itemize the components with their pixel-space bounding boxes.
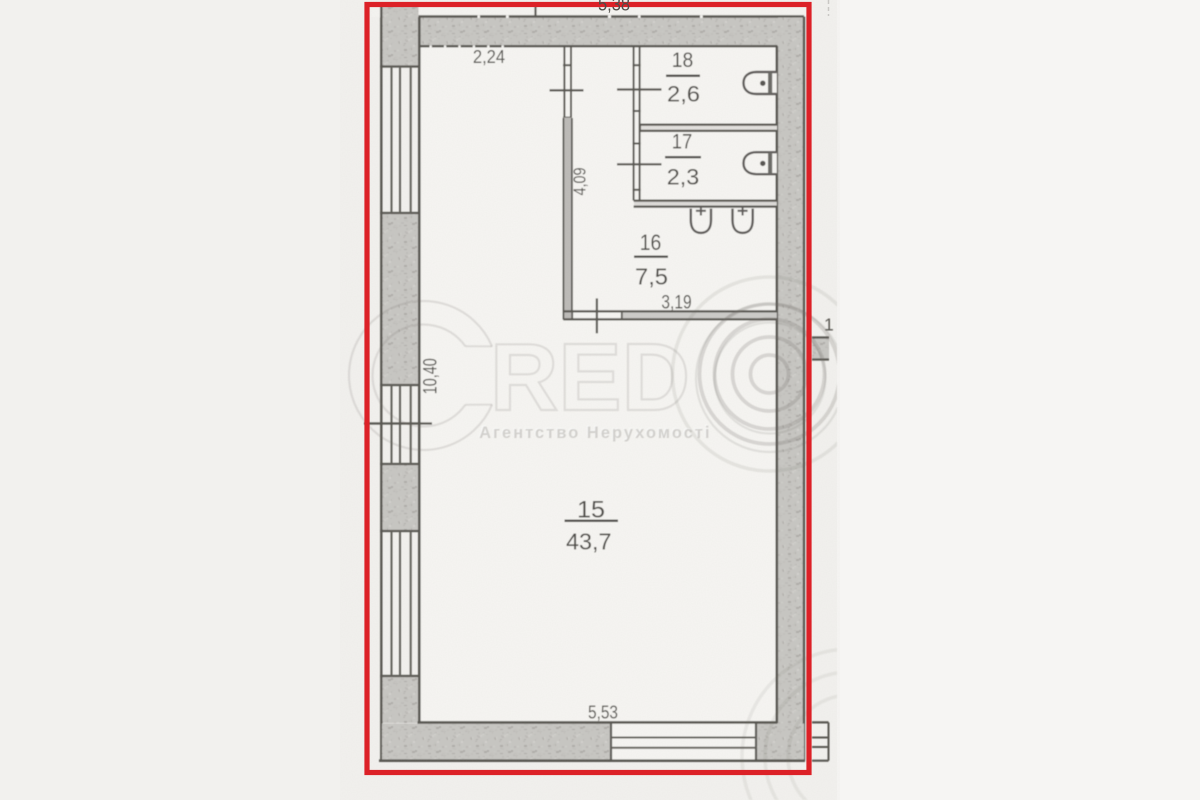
svg-text:5,38: 5,38 [598,0,630,15]
